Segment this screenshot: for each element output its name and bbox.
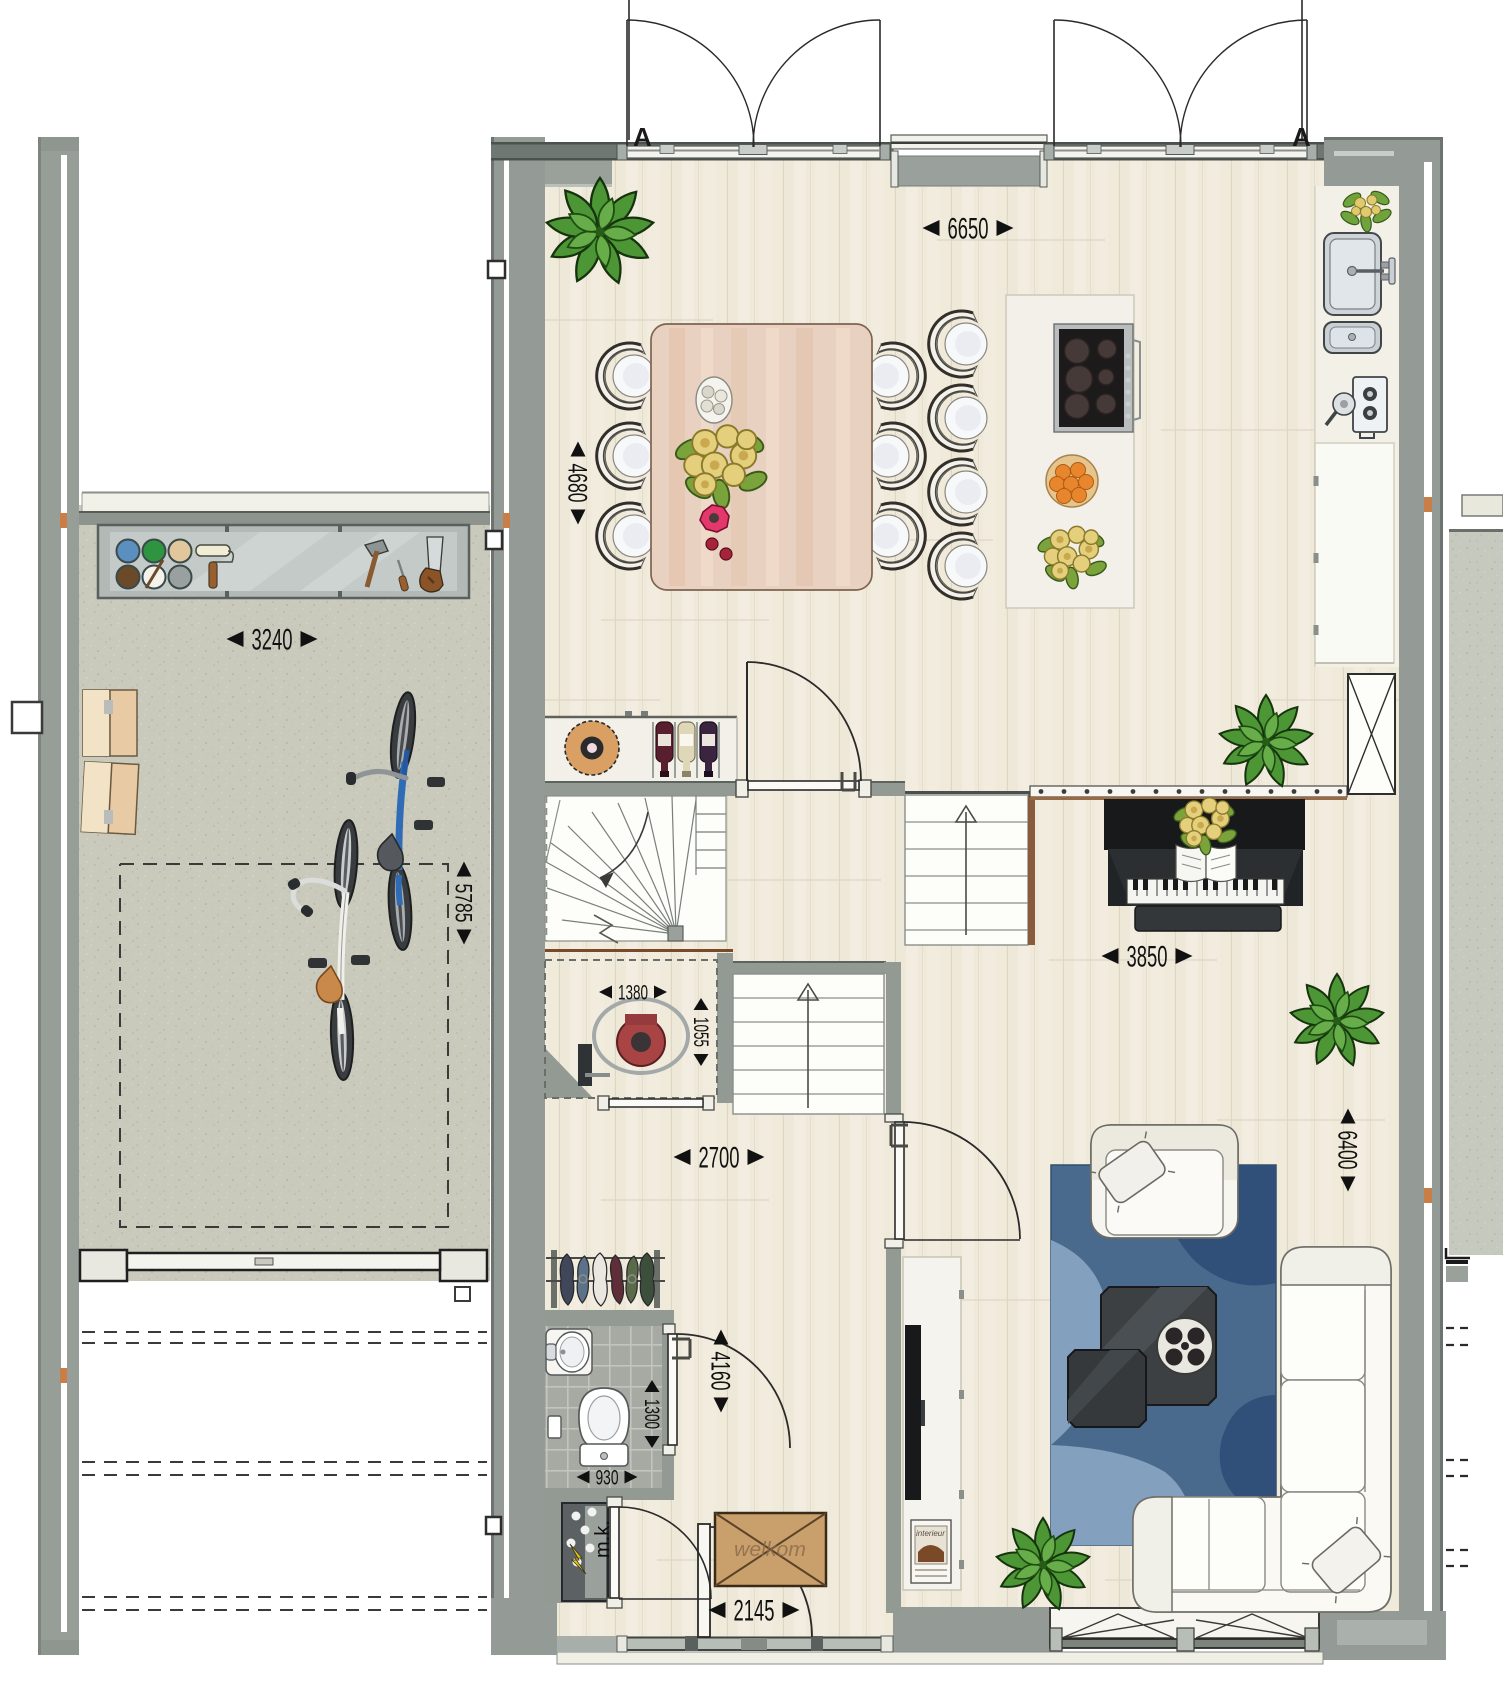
svg-text:6400: 6400 xyxy=(1333,1131,1363,1170)
svg-text:4160: 4160 xyxy=(706,1352,736,1391)
svg-text:3850: 3850 xyxy=(1127,941,1168,974)
svg-text:4680: 4680 xyxy=(563,464,593,503)
svg-text:A: A xyxy=(1292,122,1311,152)
svg-text:930: 930 xyxy=(596,1467,619,1490)
svg-text:3240: 3240 xyxy=(252,624,293,657)
svg-text:6650: 6650 xyxy=(948,213,989,246)
svg-text:5785: 5785 xyxy=(450,884,477,923)
svg-text:interieur: interieur xyxy=(916,1529,945,1538)
svg-text:welkom: welkom xyxy=(734,1539,806,1561)
svg-text:2145: 2145 xyxy=(734,1595,775,1628)
svg-text:2700: 2700 xyxy=(699,1142,740,1175)
svg-text:1380: 1380 xyxy=(618,982,648,1005)
svg-text:1055: 1055 xyxy=(689,1017,712,1047)
svg-text:1300: 1300 xyxy=(640,1399,663,1429)
svg-text:A: A xyxy=(633,122,652,152)
